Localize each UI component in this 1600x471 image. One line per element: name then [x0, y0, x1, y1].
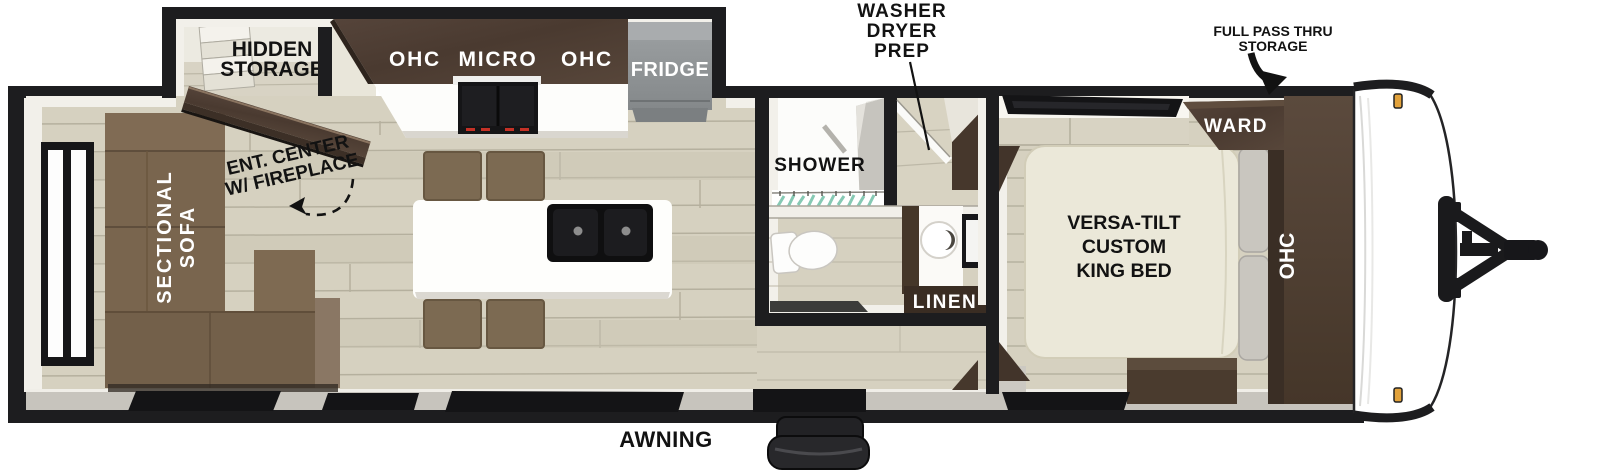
svg-text:AWNING: AWNING [619, 427, 712, 452]
svg-text:OHC: OHC [561, 48, 613, 71]
svg-text:WARD: WARD [1204, 116, 1268, 137]
svg-text:CUSTOM: CUSTOM [1082, 236, 1166, 258]
svg-text:FULL PASS THRU: FULL PASS THRU [1213, 23, 1332, 39]
svg-text:SOFA: SOFA [177, 206, 199, 268]
svg-text:VERSA-TILT: VERSA-TILT [1067, 212, 1180, 234]
svg-text:OHC: OHC [1276, 233, 1299, 280]
svg-text:STORAGE: STORAGE [220, 58, 323, 81]
svg-text:FRIDGE: FRIDGE [631, 59, 710, 81]
svg-text:SHOWER: SHOWER [774, 155, 866, 176]
svg-text:OHC: OHC [389, 48, 441, 71]
svg-text:MICRO: MICRO [459, 48, 538, 71]
svg-text:LINEN: LINEN [913, 292, 978, 313]
svg-text:STORAGE: STORAGE [1239, 38, 1308, 54]
svg-text:KING BED: KING BED [1076, 260, 1171, 282]
svg-text:PREP: PREP [874, 41, 930, 62]
svg-text:WASHER: WASHER [857, 1, 946, 22]
svg-text:SECTIONAL: SECTIONAL [154, 170, 176, 304]
svg-text:DRYER: DRYER [867, 21, 938, 42]
